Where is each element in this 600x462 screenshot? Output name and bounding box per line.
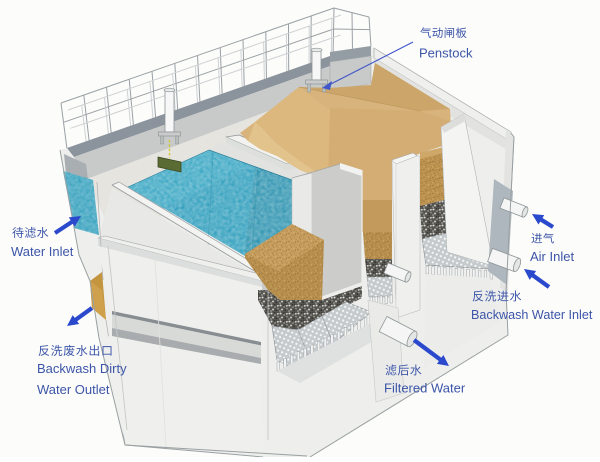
- svg-text:Filtered Water: Filtered Water: [384, 381, 466, 396]
- svg-text:Air Inlet: Air Inlet: [530, 249, 574, 264]
- svg-text:Water Inlet: Water Inlet: [11, 244, 74, 259]
- svg-text:Penstock: Penstock: [419, 46, 473, 61]
- svg-text:Backwash Dirty: Backwash Dirty: [37, 361, 127, 376]
- svg-text:Backwash Water Inlet: Backwash Water Inlet: [471, 308, 593, 322]
- svg-text:Water Outlet: Water Outlet: [37, 382, 110, 397]
